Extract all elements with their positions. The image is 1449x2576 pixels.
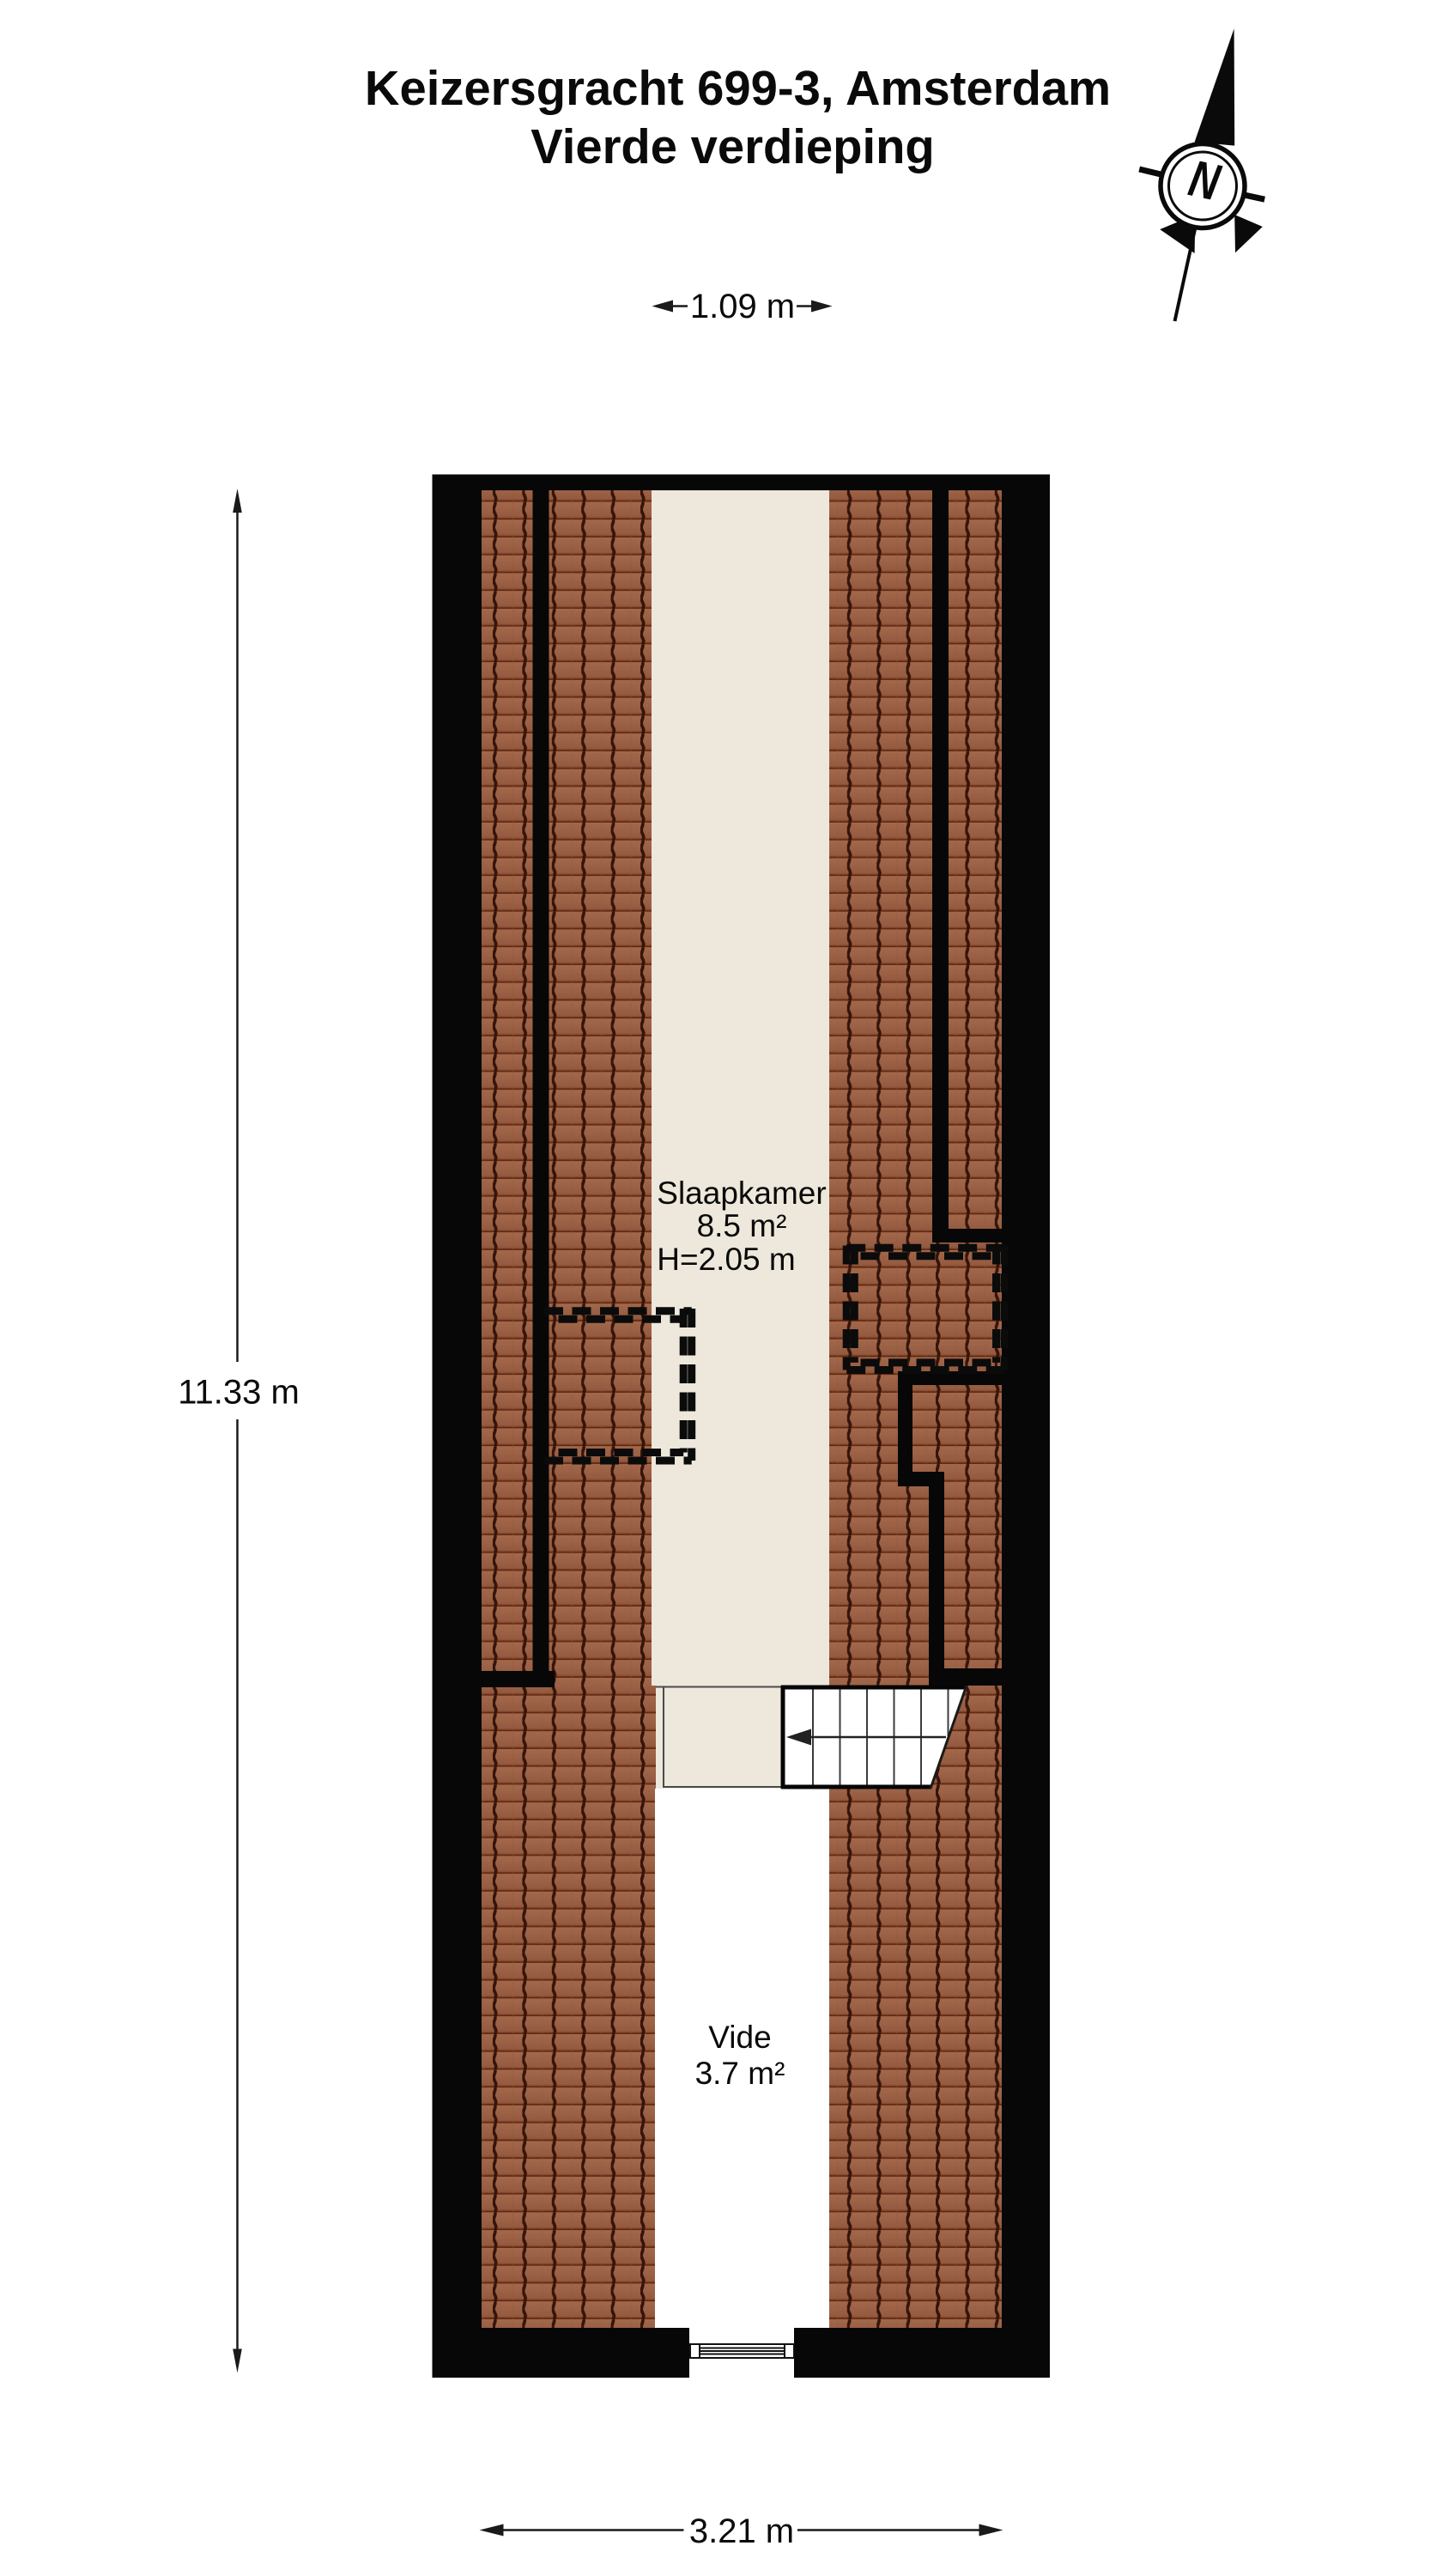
svg-text:3.7 m²: 3.7 m²: [695, 2056, 785, 2091]
svg-text:8.5 m²: 8.5 m²: [697, 1208, 787, 1243]
svg-text:11.33 m: 11.33 m: [178, 1374, 300, 1412]
svg-text:Keizersgracht 699-3, Amsterdam: Keizersgracht 699-3, Amsterdam: [365, 61, 1111, 115]
svg-text:Slaapkamer: Slaapkamer: [657, 1176, 826, 1211]
svg-text:3.21 m: 3.21 m: [689, 2512, 794, 2550]
svg-text:Vide: Vide: [708, 2020, 771, 2055]
svg-text:1.09 m: 1.09 m: [690, 288, 795, 325]
svg-text:Vierde verdieping: Vierde verdieping: [530, 119, 935, 173]
svg-text:H=2.05 m: H=2.05 m: [657, 1242, 795, 1277]
